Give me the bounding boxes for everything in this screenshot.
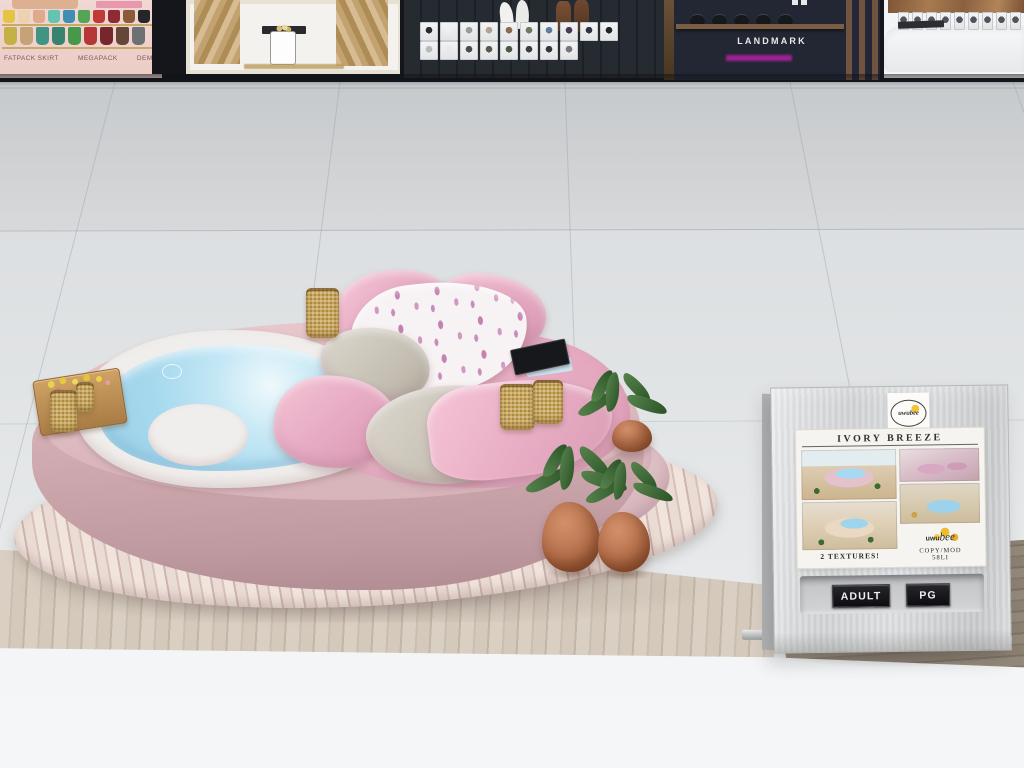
swatch bbox=[68, 27, 81, 45]
brand-logo-card[interactable]: uwubee bbox=[887, 392, 930, 433]
swatch bbox=[560, 22, 578, 41]
swatch bbox=[440, 41, 458, 60]
maturity-button-tray: ADULT PG bbox=[800, 574, 985, 615]
kiosk-bottom-shade bbox=[775, 629, 1011, 652]
poster-photo-water-closeup bbox=[900, 483, 981, 524]
swatch bbox=[954, 12, 965, 30]
swatch bbox=[540, 41, 558, 60]
swatch bbox=[440, 22, 458, 41]
swatch bbox=[116, 27, 129, 45]
swatch bbox=[480, 41, 498, 60]
swatch bbox=[108, 10, 120, 23]
vendor-poster[interactable]: IVORY BREEZE uwubee COPY/MOD 58LI 2 TEXT… bbox=[796, 428, 986, 569]
store-floor-shadow bbox=[0, 74, 1024, 86]
poster-logo-cell: uwubee COPY/MOD 58LI bbox=[900, 525, 981, 564]
store-counter-corner[interactable] bbox=[884, 0, 1024, 78]
poster-title: IVORY BREEZE bbox=[802, 430, 978, 447]
poster-photo-pink-wide bbox=[801, 449, 897, 500]
store-jewelry-booth[interactable] bbox=[186, 0, 402, 74]
gold-rail bbox=[2, 24, 158, 26]
swatch bbox=[138, 10, 150, 23]
swatch bbox=[93, 10, 105, 23]
textures-note: 2 TEXTURES! bbox=[802, 551, 897, 564]
gold-caption-blur bbox=[244, 64, 344, 69]
swatch bbox=[968, 12, 979, 30]
pg-button[interactable]: PG bbox=[906, 583, 950, 607]
swatch bbox=[500, 41, 518, 60]
swatch bbox=[540, 22, 558, 41]
pink-sign bbox=[96, 1, 142, 8]
swatch bbox=[1010, 12, 1021, 30]
swatch bbox=[48, 10, 60, 23]
wall-pillar bbox=[152, 0, 186, 74]
swatch bbox=[84, 27, 97, 45]
swatch bbox=[100, 27, 113, 45]
fatpack-label: FATPACK SKIRT bbox=[4, 55, 59, 62]
swatch bbox=[3, 10, 15, 23]
swatch bbox=[420, 22, 438, 41]
wood-slats bbox=[846, 0, 880, 80]
store-boutique-panel[interactable] bbox=[404, 0, 664, 78]
land-impact-text: 58LI bbox=[901, 554, 981, 562]
megapack-label: MEGAPACK bbox=[78, 55, 118, 62]
counter-front bbox=[884, 26, 1024, 72]
swatch bbox=[500, 22, 518, 41]
swatch bbox=[982, 12, 993, 30]
swatch bbox=[580, 22, 598, 41]
swatch bbox=[520, 41, 538, 60]
wall-tag bbox=[792, 0, 798, 5]
poster-photo-pillow-closeup bbox=[899, 448, 979, 482]
flower-ornament bbox=[274, 24, 292, 33]
swatch bbox=[420, 41, 438, 60]
curtain-left bbox=[194, 0, 240, 64]
store-fashion-panel[interactable]: FATPACK SKIRT MEGAPACK DEMO bbox=[0, 0, 162, 78]
swatch bbox=[33, 10, 45, 23]
swatch bbox=[20, 27, 33, 45]
swatch bbox=[36, 27, 49, 45]
swatch bbox=[460, 22, 478, 41]
swatch bbox=[520, 22, 538, 41]
swatch bbox=[480, 22, 498, 41]
swatch bbox=[4, 27, 17, 45]
swatch bbox=[996, 12, 1007, 30]
brand-suffix: bee bbox=[940, 531, 955, 543]
skirt-swatches bbox=[4, 27, 145, 45]
landmark-subtitle-blur bbox=[726, 55, 792, 61]
store-landmark-panel[interactable]: LANDMARK bbox=[664, 0, 880, 80]
display-vase bbox=[270, 31, 296, 65]
swatch bbox=[460, 41, 478, 60]
swatch bbox=[18, 10, 30, 23]
adult-button[interactable]: ADULT bbox=[832, 584, 890, 608]
bee-logo-icon: uwubee bbox=[890, 399, 926, 427]
poster-photo-cream-wide bbox=[802, 501, 898, 550]
swatch bbox=[123, 10, 135, 23]
swatch bbox=[560, 41, 578, 60]
brand-prefix: uwu bbox=[926, 535, 940, 542]
landmark-sign: LANDMARK bbox=[694, 36, 850, 48]
pants-cards bbox=[420, 41, 578, 60]
swatch bbox=[78, 10, 90, 23]
wall-tag bbox=[801, 0, 807, 5]
mannequin-legs bbox=[12, 0, 78, 9]
swatch bbox=[132, 27, 145, 45]
vendor-kiosk[interactable]: uwubee IVORY BREEZE uwubee COPY/MOD 58LI… bbox=[770, 384, 1012, 653]
swatch bbox=[52, 27, 65, 45]
virtual-world-viewport: FATPACK SKIRT MEGAPACK DEMO LANDMARK bbox=[0, 0, 1024, 768]
gold-rail bbox=[2, 47, 158, 49]
swatch bbox=[600, 22, 618, 41]
wood-post bbox=[664, 0, 674, 80]
wood-shelf bbox=[676, 24, 844, 29]
top-swatches bbox=[3, 10, 150, 23]
swatch bbox=[63, 10, 75, 23]
shirt-cards bbox=[420, 22, 618, 41]
curtain-right bbox=[336, 0, 388, 66]
